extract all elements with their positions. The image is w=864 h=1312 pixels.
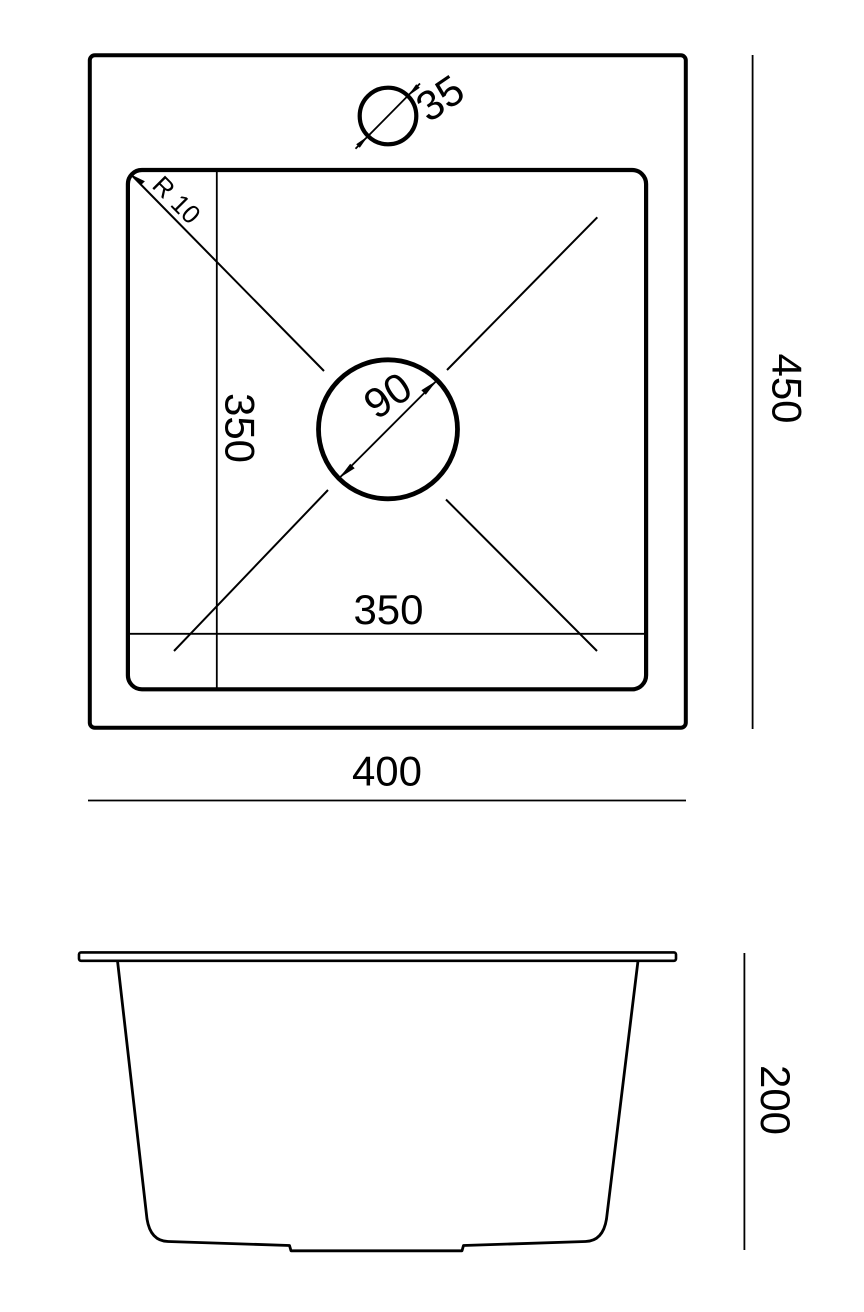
svg-text:200: 200 [752,1065,799,1135]
svg-text:450: 450 [764,353,811,423]
svg-text:350: 350 [217,393,264,463]
svg-text:350: 350 [353,586,423,633]
svg-text:400: 400 [352,748,422,795]
